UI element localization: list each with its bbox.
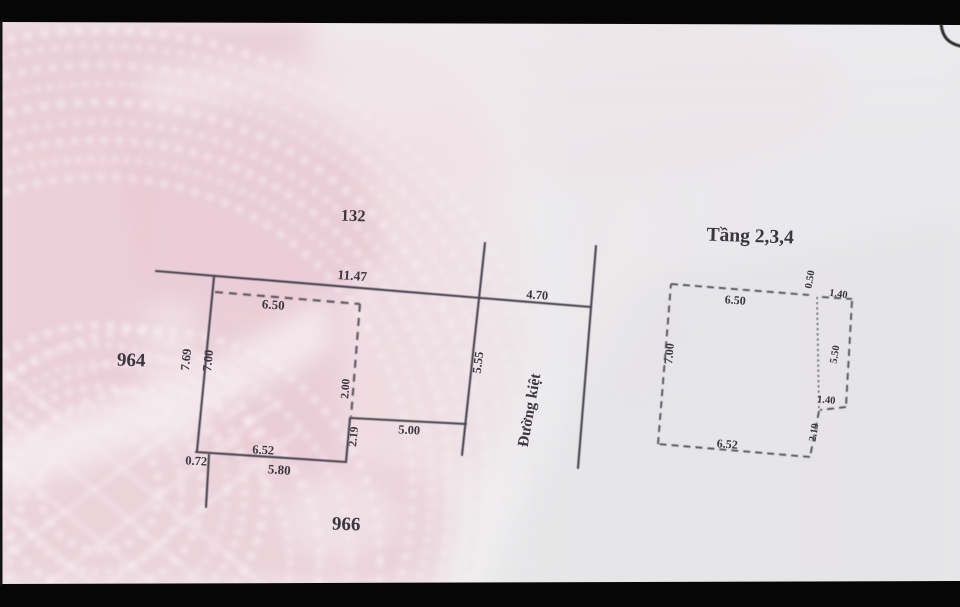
svg-text:6.50: 6.50 [724, 292, 746, 307]
svg-text:7.00: 7.00 [200, 349, 216, 372]
svg-text:6.52: 6.52 [252, 442, 275, 457]
svg-text:5.80: 5.80 [267, 461, 291, 478]
svg-text:2.00: 2.00 [339, 378, 352, 399]
svg-text:6.50: 6.50 [261, 296, 285, 313]
svg-text:964: 964 [117, 350, 147, 372]
svg-text:966: 966 [332, 514, 361, 536]
svg-text:7.00: 7.00 [661, 343, 677, 365]
svg-text:132: 132 [340, 206, 365, 226]
svg-text:11.47: 11.47 [337, 267, 368, 284]
svg-text:7.69: 7.69 [178, 348, 194, 371]
svg-text:4.70: 4.70 [526, 287, 549, 302]
svg-text:6.52: 6.52 [716, 436, 738, 451]
svg-text:Tầng 2,3,4: Tầng 2,3,4 [706, 224, 794, 248]
svg-text:5.55: 5.55 [470, 351, 487, 374]
svg-text:0.72: 0.72 [185, 453, 208, 468]
svg-text:2.19: 2.19 [347, 426, 361, 448]
svg-text:5.00: 5.00 [398, 422, 421, 437]
svg-text:1.40: 1.40 [817, 394, 836, 407]
